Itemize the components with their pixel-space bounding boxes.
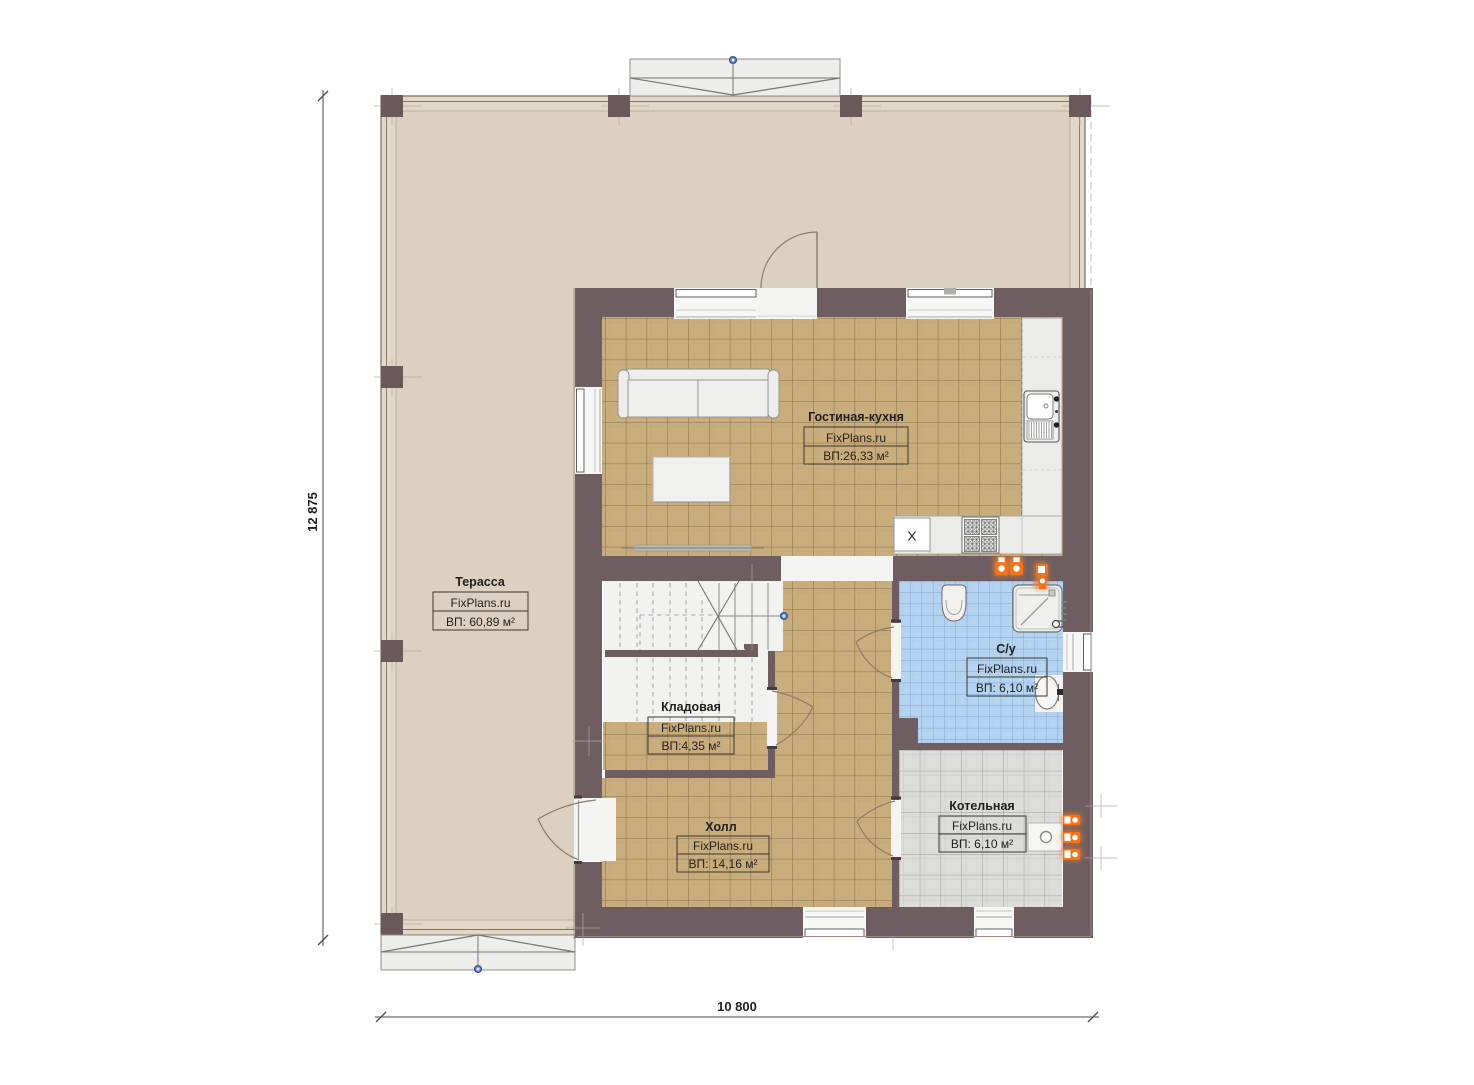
svg-text:ВП:26,33 м²: ВП:26,33 м² xyxy=(823,449,889,463)
svg-text:FixPlans.ru: FixPlans.ru xyxy=(693,839,753,853)
svg-text:FixPlans.ru: FixPlans.ru xyxy=(826,431,886,445)
svg-text:ВП: 6,10 м²: ВП: 6,10 м² xyxy=(951,837,1013,851)
svg-text:FixPlans.ru: FixPlans.ru xyxy=(661,721,721,735)
svg-text:ВП: 60,89 м²: ВП: 60,89 м² xyxy=(446,615,515,629)
svg-text:ВП: 6,10 м²: ВП: 6,10 м² xyxy=(976,681,1038,695)
svg-text:FixPlans.ru: FixPlans.ru xyxy=(952,819,1012,833)
svg-text:ВП:4,35 м²: ВП:4,35 м² xyxy=(662,739,721,753)
svg-text:10 800: 10 800 xyxy=(717,999,757,1014)
svg-text:С/у: С/у xyxy=(996,642,1016,656)
svg-text:Гостиная-кухня: Гостиная-кухня xyxy=(808,410,904,424)
svg-text:Терасса: Терасса xyxy=(455,575,506,589)
svg-text:Котельная: Котельная xyxy=(949,799,1014,813)
svg-text:12 875: 12 875 xyxy=(305,492,320,532)
svg-text:FixPlans.ru: FixPlans.ru xyxy=(977,662,1037,676)
svg-text:FixPlans.ru: FixPlans.ru xyxy=(450,596,510,610)
svg-text:Кладовая: Кладовая xyxy=(661,700,721,714)
svg-text:ВП: 14,16 м²: ВП: 14,16 м² xyxy=(689,857,758,871)
svg-text:Холл: Холл xyxy=(705,820,736,834)
